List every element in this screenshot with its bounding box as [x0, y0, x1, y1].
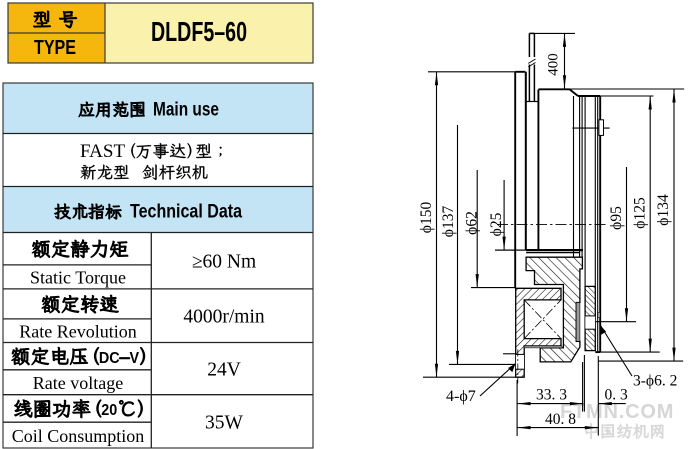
svg-text:DLDF5–60: DLDF5–60: [151, 16, 247, 47]
svg-text:ϕ125: ϕ125: [632, 197, 649, 229]
svg-text:≥60 Nm: ≥60 Nm: [192, 252, 256, 273]
svg-text:V: V: [130, 350, 140, 367]
svg-text:4-ϕ7: 4-ϕ7: [446, 388, 476, 405]
svg-text:Technical Data: Technical Data: [130, 201, 242, 223]
svg-text:3-ϕ6. 2: 3-ϕ6. 2: [633, 373, 677, 390]
svg-text:ϕ25: ϕ25: [488, 212, 505, 236]
svg-text:Static Torque: Static Torque: [30, 268, 126, 288]
svg-text:DC: DC: [99, 350, 120, 367]
svg-text:Coil Consumption: Coil Consumption: [12, 426, 145, 446]
svg-text:Rate Revolution: Rate Revolution: [19, 321, 136, 341]
svg-text:TYPE: TYPE: [34, 37, 76, 59]
svg-text:40. 8: 40. 8: [545, 411, 576, 428]
svg-text:400: 400: [545, 53, 561, 76]
svg-text:33. 3: 33. 3: [536, 387, 567, 404]
svg-text:4000r/min: 4000r/min: [183, 307, 264, 328]
svg-text:35W: 35W: [205, 412, 244, 433]
svg-text:0. 3: 0. 3: [605, 387, 629, 404]
svg-text:ϕ134: ϕ134: [655, 194, 672, 226]
svg-text:FAST: FAST: [80, 141, 125, 162]
svg-text:ϕ62: ϕ62: [464, 211, 481, 235]
svg-text:ϕ137: ϕ137: [440, 206, 457, 238]
svg-text:Main use: Main use: [153, 99, 219, 121]
svg-text:ϕ95: ϕ95: [608, 206, 625, 230]
svg-text:20: 20: [101, 402, 117, 419]
svg-text:ϕ150: ϕ150: [418, 202, 435, 234]
svg-text:Rate voltage: Rate voltage: [33, 373, 123, 393]
svg-text:24V: 24V: [207, 360, 241, 381]
